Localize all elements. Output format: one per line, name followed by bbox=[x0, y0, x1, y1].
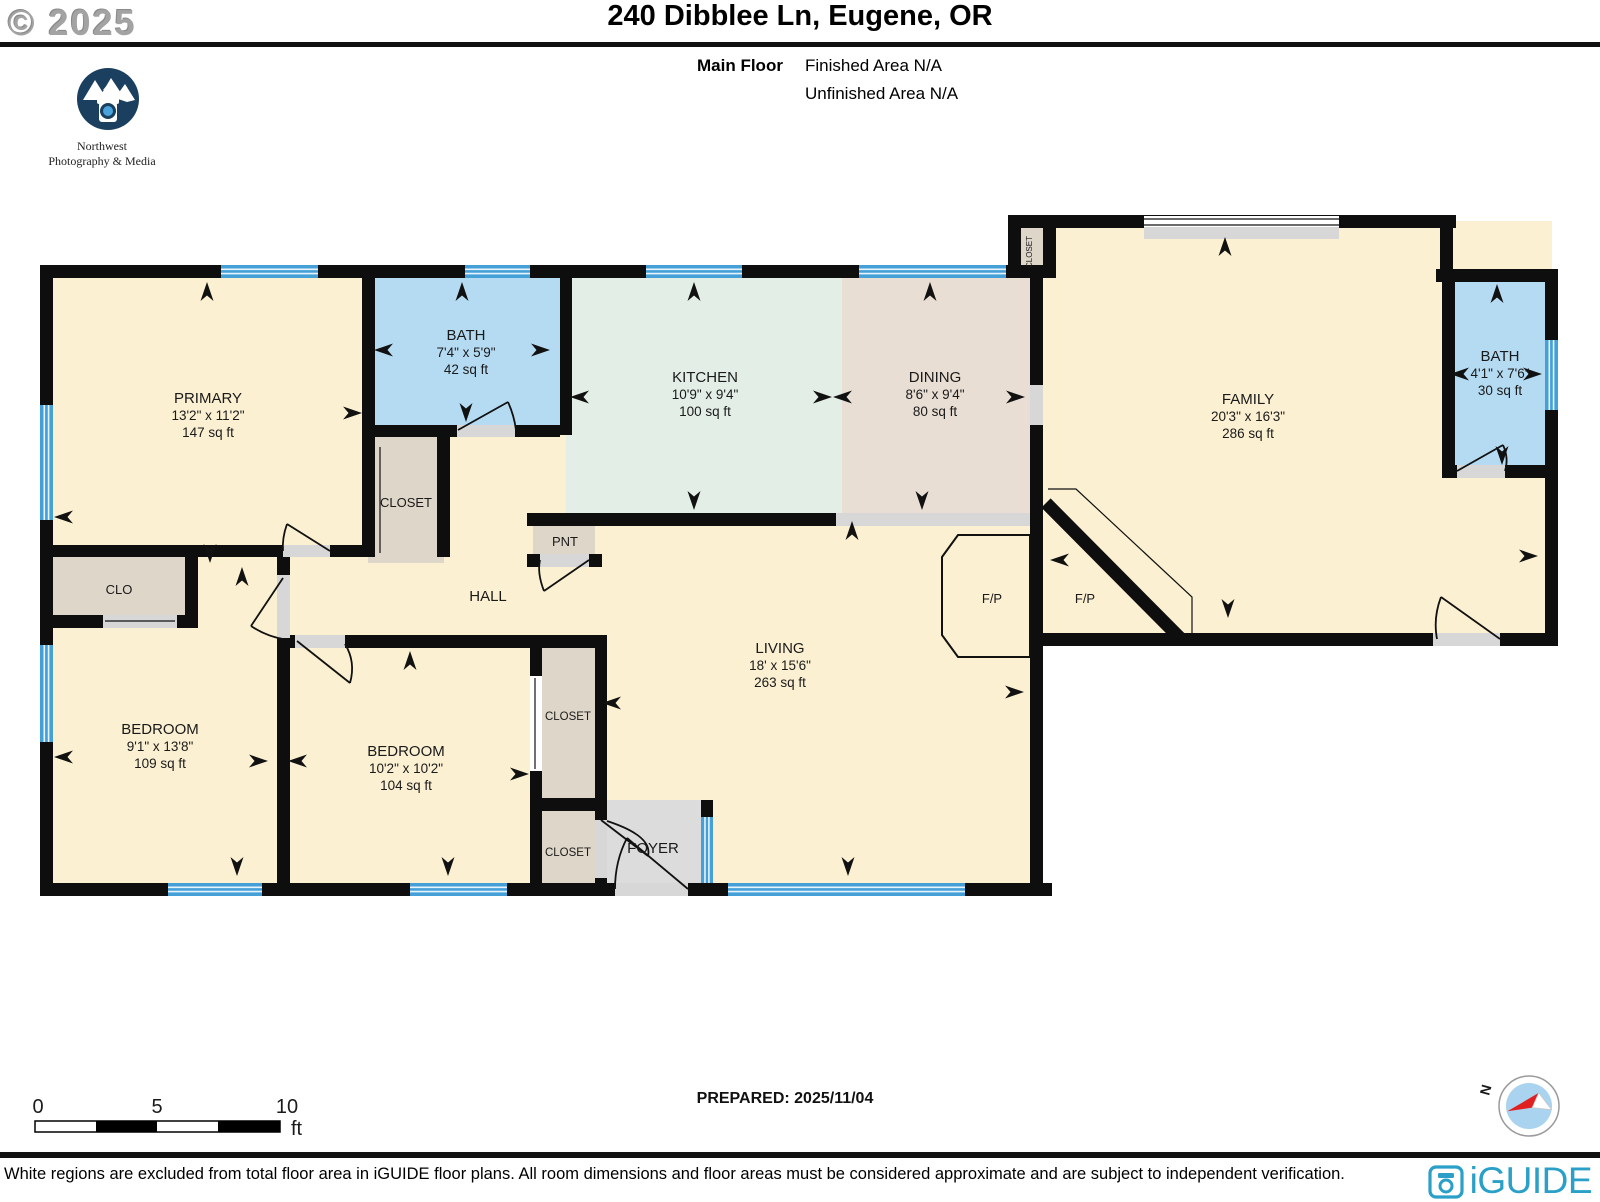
svg-text:286 sq ft: 286 sq ft bbox=[1222, 426, 1274, 441]
scale-bar: 0 5 10 ft bbox=[32, 1096, 302, 1140]
room-floors bbox=[46, 221, 1552, 896]
footer-divider bbox=[0, 1152, 1600, 1158]
svg-text:104 sq ft: 104 sq ft bbox=[380, 778, 432, 793]
label-dining: DINING bbox=[909, 369, 962, 386]
scale-tick-10: 10 bbox=[276, 1096, 298, 1118]
compass-north-label: N bbox=[1476, 1083, 1494, 1097]
label-pantry: PNT bbox=[552, 534, 578, 549]
floor-plan: PRIMARY 13'2" x 11'2" 147 sq ft BATH 7'4… bbox=[0, 0, 1600, 1200]
label-primary: PRIMARY bbox=[174, 390, 242, 407]
svg-text:18' x 15'6": 18' x 15'6" bbox=[749, 658, 811, 673]
window bbox=[859, 265, 1006, 278]
scale-unit: ft bbox=[291, 1118, 303, 1140]
svg-text:20'3" x 16'3": 20'3" x 16'3" bbox=[1211, 409, 1285, 424]
svg-text:13'2" x 11'2": 13'2" x 11'2" bbox=[171, 408, 244, 423]
svg-text:10'2" x 10'2": 10'2" x 10'2" bbox=[369, 761, 443, 776]
svg-text:42 sq ft: 42 sq ft bbox=[444, 362, 489, 377]
label-closet-a: CLOSET bbox=[545, 711, 591, 723]
label-foyer: FOYER bbox=[627, 840, 679, 857]
label-closet-primary: CLOSET bbox=[380, 495, 432, 510]
svg-text:100 sq ft: 100 sq ft bbox=[679, 404, 731, 419]
disclaimer-text: White regions are excluded from total fl… bbox=[4, 1165, 1345, 1184]
svg-text:8'6" x 9'4": 8'6" x 9'4" bbox=[905, 387, 964, 402]
window bbox=[1545, 340, 1558, 410]
window bbox=[40, 405, 53, 520]
label-clo: CLO bbox=[106, 582, 133, 597]
window bbox=[410, 883, 507, 896]
window bbox=[465, 265, 530, 278]
label-family: FAMILY bbox=[1222, 391, 1274, 408]
svg-text:10'9" x 9'4": 10'9" x 9'4" bbox=[672, 387, 739, 402]
svg-text:7'4" x 5'9": 7'4" x 5'9" bbox=[436, 345, 495, 360]
label-bath1: BATH bbox=[447, 327, 486, 344]
svg-text:9'1" x 13'8": 9'1" x 13'8" bbox=[127, 739, 194, 754]
label-closet-b: CLOSET bbox=[545, 847, 591, 859]
label-hall: HALL bbox=[469, 588, 507, 605]
prepared-date: PREPARED: 2025/11/04 bbox=[600, 1090, 970, 1108]
window bbox=[646, 265, 742, 278]
excluded-white-region bbox=[1043, 646, 1552, 896]
window bbox=[728, 883, 965, 896]
svg-text:109 sq ft: 109 sq ft bbox=[134, 756, 186, 771]
label-bath2: BATH bbox=[1481, 348, 1520, 365]
iguide-logo-text: iGUIDE bbox=[1470, 1160, 1592, 1202]
svg-text:263 sq ft: 263 sq ft bbox=[754, 675, 806, 690]
scale-tick-5: 5 bbox=[151, 1096, 162, 1118]
svg-text:80 sq ft: 80 sq ft bbox=[913, 404, 958, 419]
window bbox=[168, 883, 262, 896]
label-kitchen: KITCHEN bbox=[672, 369, 738, 386]
scale-tick-0: 0 bbox=[32, 1096, 43, 1118]
compass: N bbox=[1476, 1076, 1559, 1136]
iguide-logo: iGUIDE bbox=[1428, 1160, 1592, 1202]
window bbox=[221, 265, 318, 278]
label-fp-family: F/P bbox=[1075, 591, 1095, 606]
svg-text:4'1" x 7'6": 4'1" x 7'6" bbox=[1470, 366, 1529, 381]
label-fp-living: F/P bbox=[982, 591, 1002, 606]
iguide-logo-icon bbox=[1428, 1163, 1464, 1199]
svg-text:147 sq ft: 147 sq ft bbox=[182, 425, 234, 440]
label-closet-top: CLOSET bbox=[1025, 236, 1034, 268]
label-living: LIVING bbox=[755, 640, 804, 657]
svg-text:30 sq ft: 30 sq ft bbox=[1478, 383, 1523, 398]
window bbox=[701, 817, 713, 883]
floorplan-page: { "header": { "copyright": "© 2025", "ti… bbox=[0, 0, 1600, 1200]
label-bedroom1: BEDROOM bbox=[121, 721, 199, 738]
window bbox=[40, 645, 53, 742]
label-bedroom2: BEDROOM bbox=[367, 743, 445, 760]
